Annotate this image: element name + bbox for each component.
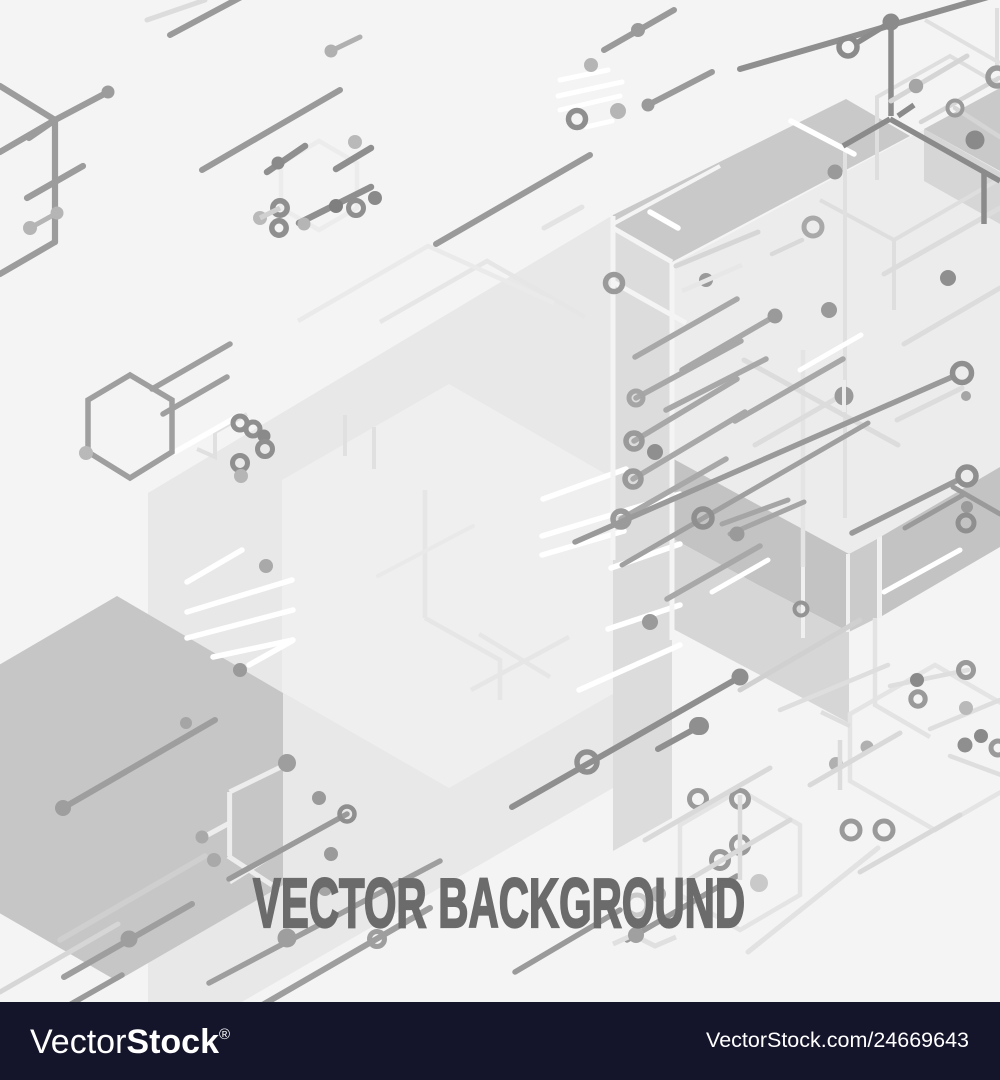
svg-text:VectorStock®: VectorStock®	[30, 1023, 230, 1061]
svg-text:VectorStock.com/24669643: VectorStock.com/24669643	[706, 1028, 969, 1052]
svg-text:VECTOR BACKGROUND: VECTOR BACKGROUND	[253, 865, 745, 942]
